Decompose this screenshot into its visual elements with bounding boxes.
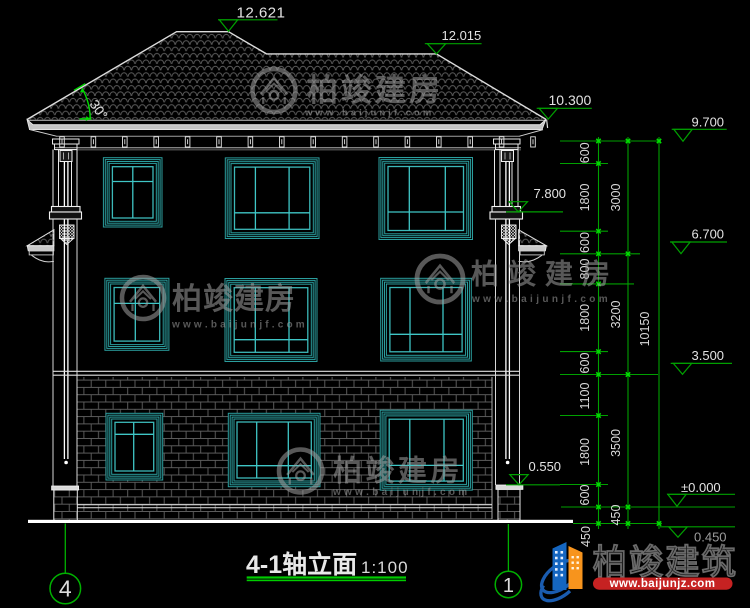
svg-text:600: 600: [578, 142, 592, 163]
svg-text:450: 450: [609, 505, 623, 526]
svg-text:柏竣建筑: 柏竣建筑: [593, 543, 738, 582]
svg-text:0.450: 0.450: [694, 530, 727, 545]
svg-text:w w w . b a i j u n j f . c o: w w w . b a i j u n j f . c o m: [471, 294, 608, 305]
svg-text:6.700: 6.700: [692, 227, 725, 242]
svg-text:4-1轴立面: 4-1轴立面: [246, 550, 357, 579]
svg-text:w w w . b a i j u n j f . c o: w w w . b a i j u n j f . c o m: [332, 487, 467, 498]
svg-text:1800: 1800: [578, 184, 592, 212]
svg-text:1800: 1800: [578, 304, 592, 332]
svg-text:w w w . b a i j u n j f . c o: w w w . b a i j u n j f . c o m: [171, 320, 305, 331]
svg-text:0.550: 0.550: [529, 459, 562, 474]
svg-text:±0.000: ±0.000: [681, 480, 721, 495]
svg-text:1100: 1100: [578, 383, 592, 410]
svg-text:3200: 3200: [609, 301, 623, 329]
svg-text:柏竣建房: 柏竣建房: [307, 73, 443, 108]
svg-text:600: 600: [578, 232, 592, 253]
svg-text:柏竣建房: 柏竣建房: [172, 282, 296, 316]
svg-text:柏竣建房: 柏竣建房: [333, 454, 463, 488]
svg-text:10.300: 10.300: [549, 92, 592, 108]
svg-text:12.015: 12.015: [442, 28, 482, 43]
svg-text:600: 600: [578, 353, 592, 374]
svg-text:10150: 10150: [638, 312, 652, 347]
svg-text:w w w . b a i j u n j f . c o: w w w . b a i j u n j f . c o m: [304, 108, 432, 119]
svg-text:1:100: 1:100: [361, 558, 409, 577]
svg-text:3000: 3000: [609, 184, 623, 212]
svg-text:3500: 3500: [609, 429, 623, 457]
svg-text:7.800: 7.800: [534, 186, 567, 201]
svg-text:12.621: 12.621: [237, 5, 286, 22]
svg-text:www.baijunjz.com: www.baijunjz.com: [609, 578, 716, 590]
svg-text:1: 1: [503, 575, 514, 597]
svg-text:9.700: 9.700: [692, 114, 725, 129]
svg-text:450: 450: [579, 526, 593, 547]
svg-text:3.500: 3.500: [692, 348, 725, 363]
svg-text:600: 600: [578, 485, 592, 506]
svg-text:4: 4: [59, 576, 72, 602]
svg-text:1800: 1800: [578, 438, 592, 466]
svg-text:柏竣建房: 柏竣建房: [471, 258, 619, 290]
